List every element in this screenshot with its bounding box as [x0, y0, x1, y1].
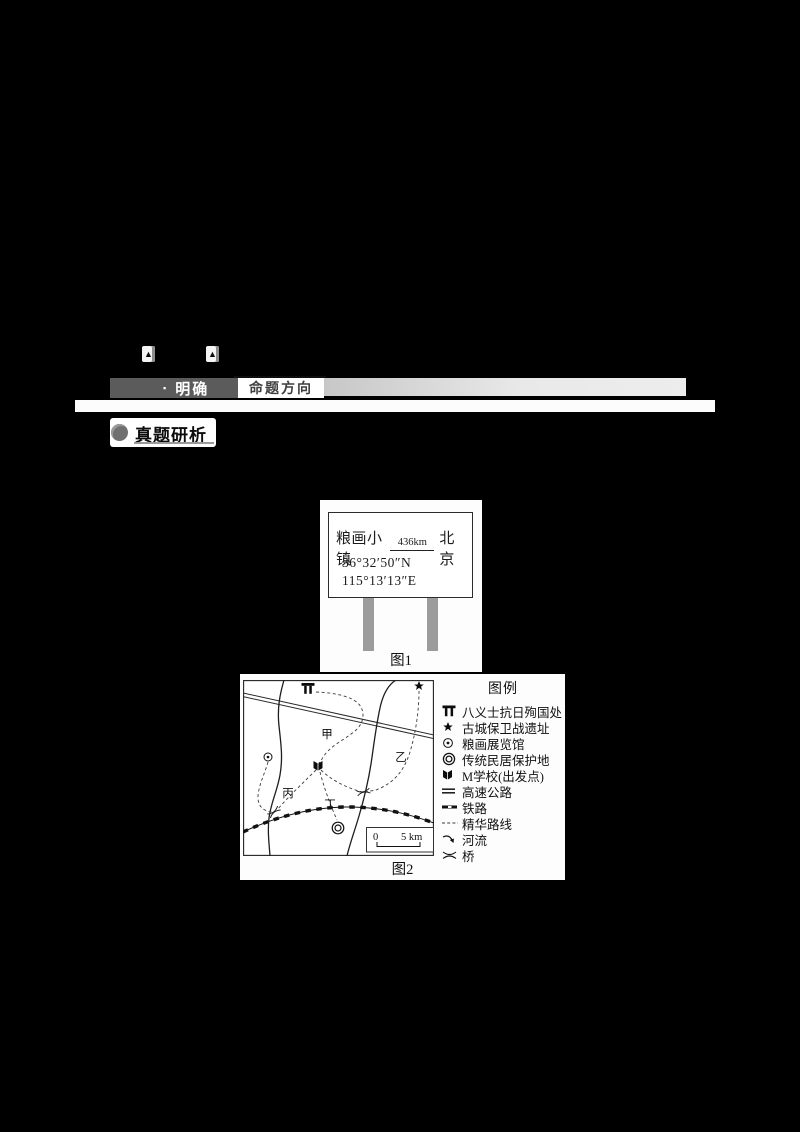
triangle-glyph: ▲ [144, 350, 153, 359]
section-header-title-box: 命题方向 [238, 378, 324, 398]
star-icon [442, 721, 462, 733]
subsection-badge: 真题研析 [110, 418, 216, 447]
legend-item: 河流 [442, 831, 564, 847]
triangle-glyph: ▲ [208, 350, 217, 359]
section-header-dark-bar: ▪ 明确 [110, 378, 238, 398]
badge-circle-icon [111, 424, 128, 441]
sign-post [427, 598, 438, 651]
sign-distance-value: 436km [398, 537, 427, 549]
double-circle-icon [332, 822, 344, 834]
sign-distance-fraction: 436km [390, 537, 434, 551]
figure2-panel: 甲 乙 丙 丁 0 5 km 图例 八义士抗日殉国处 [240, 674, 565, 880]
legend-item: 精华路线 [442, 815, 564, 831]
sign-post [363, 598, 374, 651]
figure1-caption: 图1 [320, 649, 482, 670]
circle-dot-icon [442, 737, 462, 749]
header-title-label: 命题方向 [249, 378, 313, 398]
double-line-icon [442, 787, 462, 795]
page-marker-icon: ▲ [142, 346, 155, 362]
railway-line-icon [442, 804, 462, 810]
map-label-ding: 丁 [324, 799, 336, 811]
legend-title: 图例 [442, 678, 564, 698]
page-marker-icon: ▲ [206, 346, 219, 362]
open-book-icon [442, 769, 462, 781]
map-label-yi: 乙 [395, 751, 407, 764]
header-gradient-rule [324, 378, 686, 396]
legend-item: 高速公路 [442, 783, 564, 799]
memorial-gate-icon [442, 705, 462, 717]
figure1-panel: 粮画小镇 436km 北京 36°32′50″N 115°13′13″E 图1 [320, 500, 482, 672]
tour-map: 甲 乙 丙 丁 0 5 km [243, 680, 434, 856]
badge-underline [134, 442, 214, 444]
scanned-textbook-page: ▲ ▲ ▪ 明确 命题方向 真题研析 粮画小镇 436km 北京 36°32′ [0, 0, 800, 1132]
map-label-jia: 甲 [321, 729, 333, 741]
sign-longitude: 115°13′13″E [342, 573, 416, 589]
map-label-bing: 丙 [282, 788, 294, 800]
header-prefix-label: 明确 [175, 378, 209, 399]
sign-latitude: 36°32′50″N [342, 555, 411, 571]
content-strip [75, 400, 715, 412]
map-legend: 图例 八义士抗日殉国处 古城保卫战遗址 粮画展览馆 [442, 676, 564, 863]
road-sign-board: 粮画小镇 436km 北京 36°32′50″N 115°13′13″E [328, 512, 473, 598]
sign-city-label: 北京 [439, 527, 464, 569]
double-circle-icon [442, 752, 462, 766]
river-arrow-icon [442, 834, 462, 844]
figure2-caption: 图2 [240, 858, 565, 879]
dashed-line-icon [442, 821, 462, 825]
sign-distance-rule [390, 550, 434, 551]
square-bullet-icon: ▪ [163, 384, 166, 393]
scale-zero-label: 0 [373, 832, 378, 843]
scale-bar: 0 5 km [367, 828, 434, 853]
scale-distance-label: 5 km [401, 832, 422, 843]
